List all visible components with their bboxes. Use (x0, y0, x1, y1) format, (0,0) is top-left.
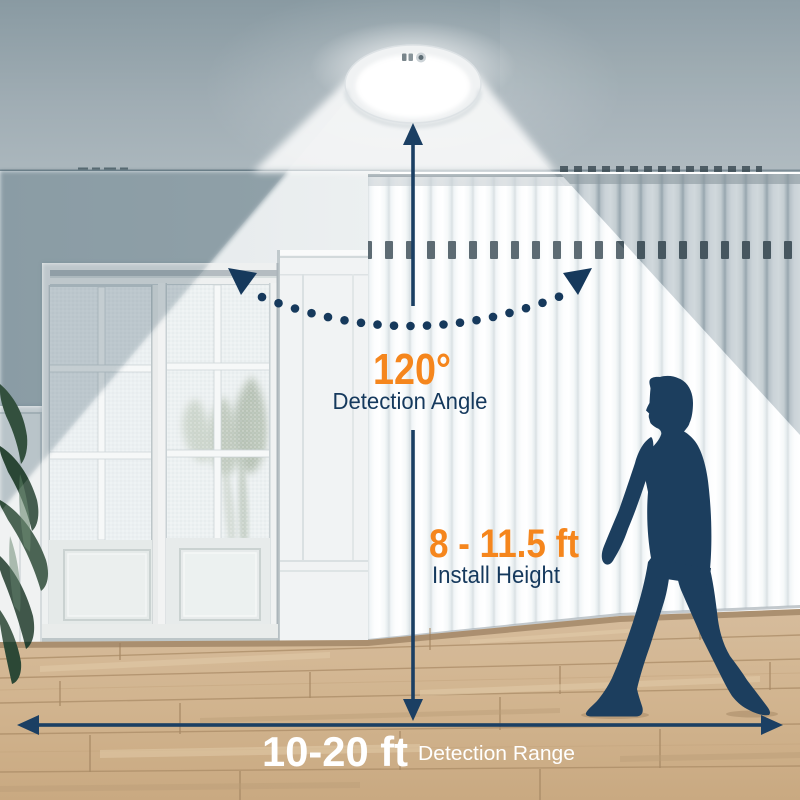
svg-text:Install Height: Install Height (432, 562, 560, 589)
svg-text:8 - 11.5 ft: 8 - 11.5 ft (429, 522, 579, 566)
svg-text:120°: 120° (373, 345, 451, 394)
svg-text:Detection Range: Detection Range (418, 742, 575, 765)
svg-text:Detection Angle: Detection Angle (333, 388, 488, 414)
svg-text:10-20 ft: 10-20 ft (262, 728, 408, 775)
